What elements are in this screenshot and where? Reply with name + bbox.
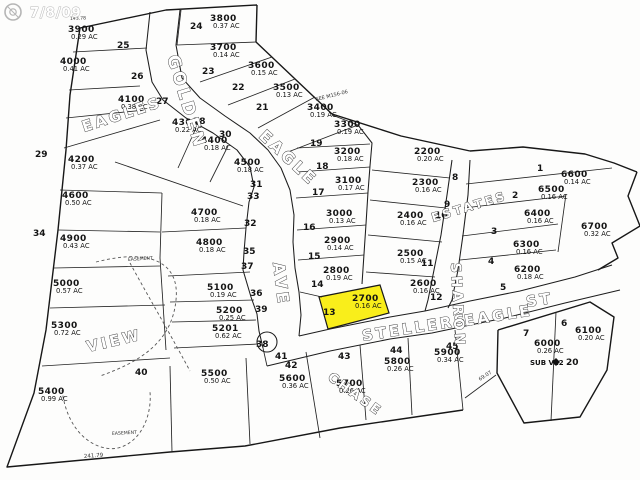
corner-number-26: 26 (131, 72, 144, 82)
corner-number-36: 36 (250, 289, 263, 299)
lot-line-0 (73, 48, 147, 52)
corner-number-39: 39 (255, 305, 268, 315)
lot-area-6600: 0.14 AC (564, 178, 591, 186)
corner-number-40: 40 (135, 368, 148, 378)
lot-line-28 (296, 193, 368, 198)
lot-area-6500: 0.16 AC (541, 193, 568, 201)
lot-area-6000: 0.26 AC (537, 347, 564, 355)
lot-area-4900: 0.43 AC (63, 242, 90, 250)
lot-area-2400: 0.16 AC (400, 219, 427, 227)
corner-number-5: 5 (500, 283, 506, 293)
corner-number-35: 35 (243, 247, 256, 257)
lot-area-5000: 0.57 AC (56, 287, 83, 295)
lot-area-4500: 0.18 AC (237, 166, 264, 174)
lot-area-5100: 0.19 AC (210, 291, 237, 299)
street-label-st-5: ST (525, 289, 555, 311)
lot-area-3300: 0.19 AC (337, 128, 364, 136)
corner-number-7: 7 (523, 329, 529, 339)
corner-number-42: 42 (285, 361, 298, 371)
corner-number-4: 4 (488, 257, 494, 267)
lot-line-40 (558, 194, 566, 252)
lot-area-3900: 0.29 AC (71, 33, 98, 41)
lot-area-4800: 0.18 AC (199, 246, 226, 254)
annotation-sub-v22: SUB V22 (530, 359, 564, 367)
area-label-chase: CHASE (325, 370, 385, 420)
corner-number-6: 6 (561, 319, 567, 329)
corner-number-38: 38 (256, 340, 269, 350)
corner-number-37: 37 (241, 262, 254, 272)
lot-line-9 (58, 230, 160, 232)
corner-number-16: 16 (303, 223, 316, 233)
plat-map-svg: 38000.37 AC39000.29 AC40000.41 AC41000.3… (0, 0, 640, 480)
lot-area-5800: 0.26 AC (387, 365, 414, 373)
corner-number-1: 1 (537, 164, 543, 174)
corner-number-13: 13 (323, 308, 336, 318)
lot-area-6100: 0.20 AC (578, 334, 605, 342)
corner-number-19: 19 (310, 139, 323, 149)
annotation-69-07: 69.07 (478, 370, 493, 383)
lot-area-5200: 0.25 AC (219, 314, 246, 322)
corner-number-44: 44 (390, 346, 403, 356)
corner-number-8: 8 (452, 173, 458, 183)
corner-number-24: 24 (190, 22, 203, 32)
lot-area-4000: 0.41 AC (63, 65, 90, 73)
corner-number-21: 21 (256, 103, 269, 113)
easement-dashed-line-1 (130, 263, 190, 371)
corner-number-11: 11 (421, 259, 434, 269)
lot-line-1 (69, 86, 140, 90)
plat-map: 38000.37 AC39000.29 AC40000.41 AC41000.3… (0, 0, 640, 480)
lot-area-2800: 0.19 AC (326, 274, 353, 282)
lot-area-6700: 0.32 AC (584, 230, 611, 238)
lot-area-6300: 0.16 AC (516, 248, 543, 256)
corner-number-23: 23 (202, 67, 215, 77)
corner-number-17: 17 (312, 188, 325, 198)
lot-area-4600: 0.50 AC (65, 199, 92, 207)
lot-area-3100: 0.17 AC (338, 184, 365, 192)
lot-line-10 (54, 266, 160, 268)
lot-line-4 (115, 162, 243, 206)
annotation-easement: EASEMENT (112, 430, 137, 437)
lot-line-12 (42, 358, 170, 366)
lot-line-46 (170, 366, 172, 452)
lot-line-44 (408, 338, 412, 415)
lot-line-8 (160, 193, 162, 258)
lot-line-35 (366, 272, 435, 277)
corner-number-18: 18 (316, 162, 329, 172)
easement-dashed-line-2 (62, 390, 150, 449)
lot-area-2700: 0.16 AC (355, 302, 382, 310)
lot-area-3500: 0.13 AC (276, 91, 303, 99)
watermark: 7/8/09 (5, 4, 82, 21)
street-label-estates-7: ESTATES (430, 189, 509, 225)
lot-area-3400: 0.19 AC (310, 111, 337, 119)
lot-line-14 (162, 228, 246, 232)
watermark-hatch (7, 6, 19, 18)
street-label-eagle-1: EAGLE (255, 126, 321, 189)
street-label-sharon-6: SHARON (447, 262, 467, 348)
lot-line-33 (370, 200, 446, 208)
lot-line-31 (300, 292, 322, 297)
corner-number-34: 34 (33, 229, 46, 239)
corner-number-43: 43 (338, 352, 351, 362)
corner-number-32: 32 (244, 219, 257, 229)
lot-area-5900: 0.34 AC (437, 356, 464, 364)
area-label-view: VIEW (85, 326, 144, 356)
corner-number-22: 22 (232, 83, 245, 93)
corner-number-20: 20 (566, 358, 579, 368)
corner-number-2: 2 (512, 191, 518, 201)
lot-area-2900: 0.14 AC (327, 244, 354, 252)
corner-number-15: 15 (308, 252, 321, 262)
lot-area-6200: 0.18 AC (517, 273, 544, 281)
lot-area-3800: 0.37 AC (213, 22, 240, 30)
lot-area-5600: 0.36 AC (282, 382, 309, 390)
lot-line-16 (170, 300, 254, 302)
corner-number-14: 14 (311, 280, 324, 290)
corner-number-41: 41 (275, 352, 288, 362)
lot-area-3700: 0.14 AC (213, 51, 240, 59)
lot-line-18 (174, 344, 258, 348)
lot-line-32 (372, 170, 450, 178)
corner-number-3: 3 (491, 227, 497, 237)
corner-number-30: 30 (219, 130, 232, 140)
corner-number-33: 33 (247, 192, 260, 202)
plat-boundary-3 (598, 172, 640, 270)
lot-area-2200: 0.20 AC (417, 155, 444, 163)
lot-line-42 (306, 352, 320, 438)
corner-number-31: 31 (250, 180, 263, 190)
lot-area-4700: 0.18 AC (194, 216, 221, 224)
lot-line-38 (462, 224, 558, 236)
lot-area-3000: 0.13 AC (329, 217, 356, 225)
corner-number-29: 29 (35, 150, 48, 160)
lot-line-15 (168, 272, 250, 276)
lot-area-4200: 0.37 AC (71, 163, 98, 171)
lot-area-3600: 0.15 AC (251, 69, 278, 77)
corner-number-12: 12 (430, 293, 443, 303)
lot-area-5400: 0.99 AC (41, 395, 68, 403)
lot-area-2300: 0.16 AC (415, 186, 442, 194)
lot-line-34 (368, 235, 442, 242)
lot-line-11 (50, 305, 165, 308)
lot-area-6400: 0.16 AC (527, 217, 554, 225)
lot-line-41 (246, 358, 250, 444)
lot-area-3200: 0.18 AC (337, 155, 364, 163)
lot-area-5500: 0.50 AC (204, 377, 231, 385)
corner-number-25: 25 (117, 41, 130, 51)
lot-area-5201: 0.62 AC (215, 332, 242, 340)
street-label-eagle-4: EAGLE (463, 301, 534, 330)
lot-line-49 (263, 348, 267, 366)
annotation-see-m156-06: SEE M156-06 (315, 89, 349, 103)
street-label-ave-2: AVE (269, 261, 293, 307)
watermark-text: 7/8/09 (30, 6, 82, 21)
lot-area-5300: 0.72 AC (54, 329, 81, 337)
